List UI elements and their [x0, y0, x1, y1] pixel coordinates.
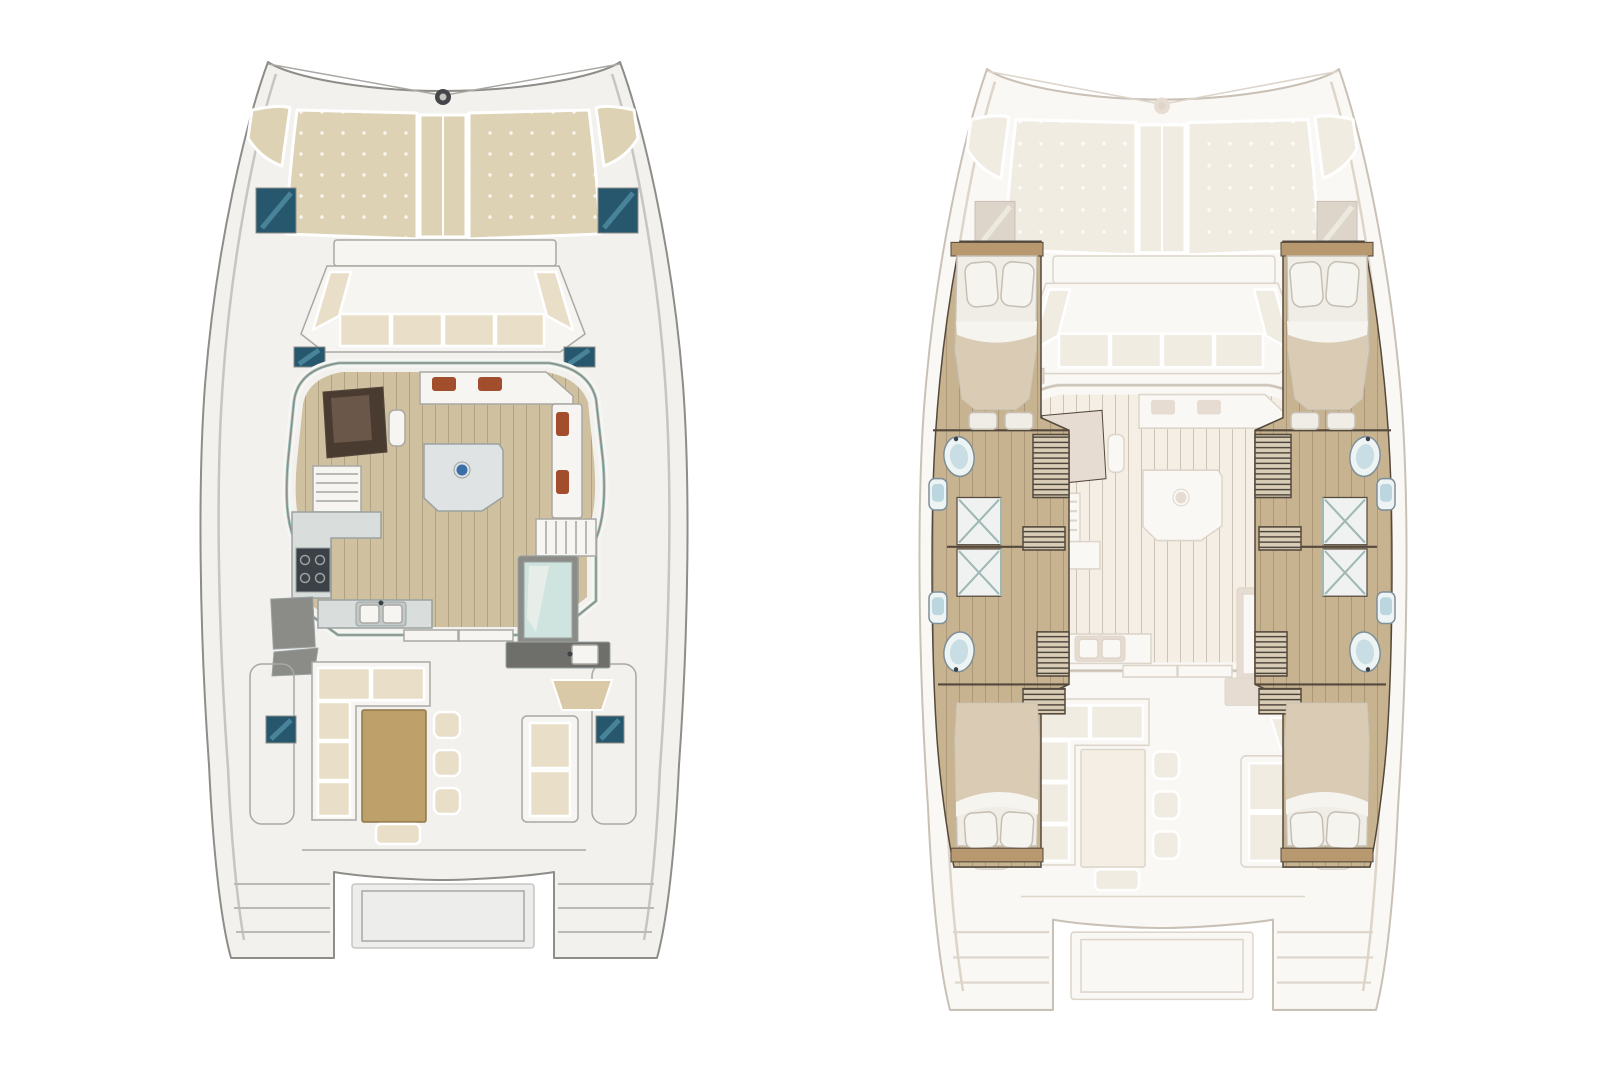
lower-deck-plan — [919, 69, 1406, 1010]
main-deck-drawing — [200, 62, 687, 958]
main-deck-plan — [200, 62, 687, 958]
floorplan-canvas — [0, 0, 1620, 1080]
catamaran-floorplan-figure — [0, 0, 1620, 1080]
